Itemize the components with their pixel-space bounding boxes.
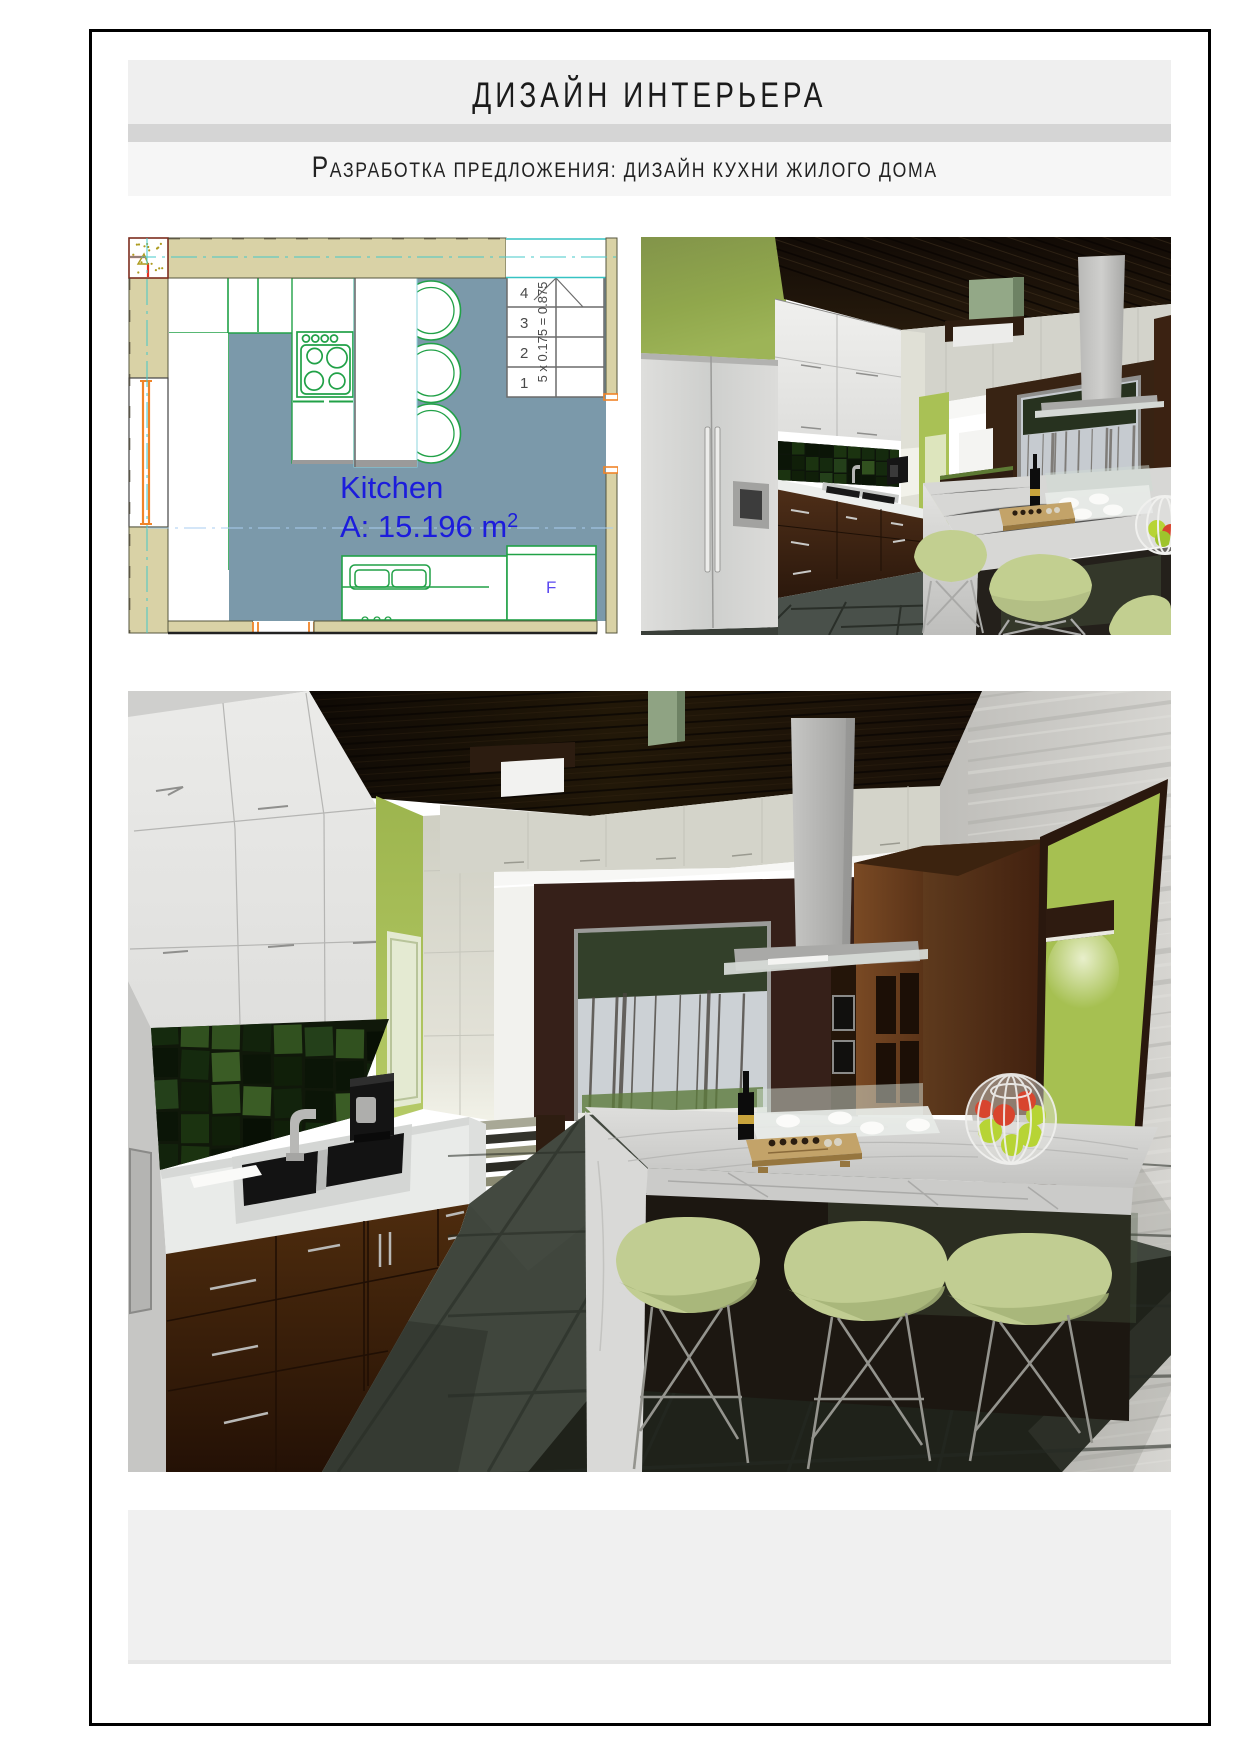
svg-text:4: 4 (520, 285, 528, 302)
svg-text:2: 2 (520, 345, 528, 362)
svg-text:5 x 0.175 = 0.875: 5 x 0.175 = 0.875 (535, 282, 550, 383)
svg-text:A: 15.196 m2: A: 15.196 m2 (340, 509, 518, 544)
svg-text:3: 3 (520, 315, 528, 332)
svg-text:1: 1 (520, 375, 528, 392)
svg-text:Kitchen: Kitchen (340, 470, 443, 505)
svg-text:F: F (546, 578, 556, 597)
